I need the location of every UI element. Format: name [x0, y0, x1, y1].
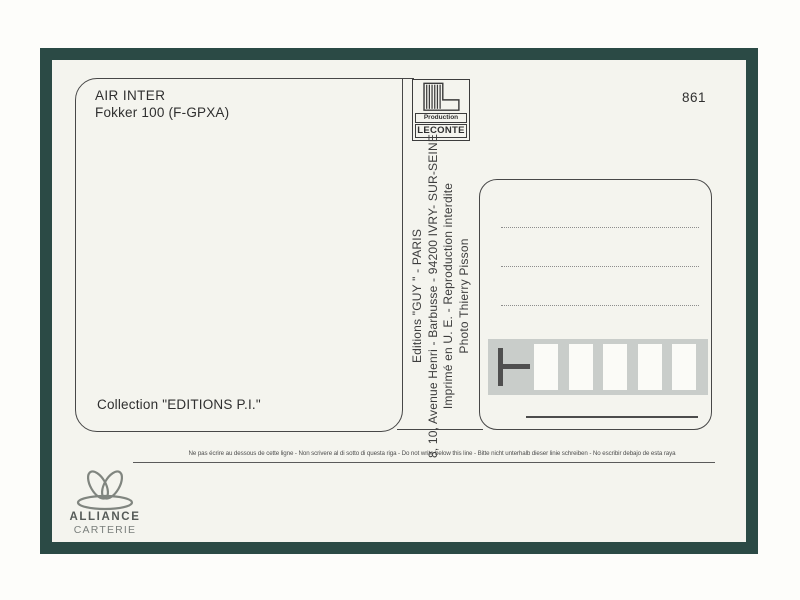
- postal-code-cell: [603, 344, 627, 390]
- postcard-scan: AIR INTER Fokker 100 (F-GPXA) Collection…: [0, 0, 800, 600]
- aircraft-subtitle: Fokker 100 (F-GPXA): [95, 105, 229, 120]
- imprint-editions: Editions "GUY " - PARIS: [410, 131, 426, 461]
- signature-rule: [526, 416, 698, 418]
- leconte-production-label: Production: [415, 113, 467, 124]
- brand-name: ALLIANCE: [56, 511, 154, 523]
- do-not-write-warning: Ne pas écrire au dessous de cette ligne …: [142, 450, 722, 457]
- warning-rule: [133, 462, 715, 463]
- postal-marker-icon: [488, 344, 534, 390]
- collection-credit: Collection "EDITIONS P.I.": [97, 397, 261, 412]
- brand-type: CARTERIE: [56, 524, 154, 536]
- alliance-flower-icon: [68, 469, 142, 513]
- address-dotted-line: [501, 305, 699, 306]
- leconte-l-icon: [416, 82, 466, 112]
- imprint-address: 8, 10, Avenue Henri - Barbusse - 94200 I…: [426, 131, 442, 461]
- postal-code-cell: [638, 344, 662, 390]
- photo-caption-box: [75, 78, 403, 432]
- airline-title: AIR INTER: [95, 88, 165, 103]
- postcard-back: AIR INTER Fokker 100 (F-GPXA) Collection…: [52, 60, 746, 542]
- card-number: 861: [682, 90, 706, 105]
- publisher-imprint: Editions "GUY " - PARIS 8, 10, Avenue He…: [410, 131, 472, 461]
- address-box: [479, 179, 712, 430]
- imprint-printed: Imprimé en U. E. - Reproduction interdit…: [441, 131, 457, 461]
- postal-code-cell: [569, 344, 593, 390]
- postal-code-cell: [672, 344, 696, 390]
- alliance-carterie-brand: ALLIANCE CARTERIE: [56, 469, 154, 536]
- imprint-photo-credit: Photo Thierry Pisson: [457, 131, 473, 461]
- green-border-frame: AIR INTER Fokker 100 (F-GPXA) Collection…: [40, 48, 758, 554]
- address-dotted-line: [501, 266, 699, 267]
- address-dotted-line: [501, 227, 699, 228]
- postal-code-cell: [534, 344, 558, 390]
- postal-code-bar: [488, 339, 708, 395]
